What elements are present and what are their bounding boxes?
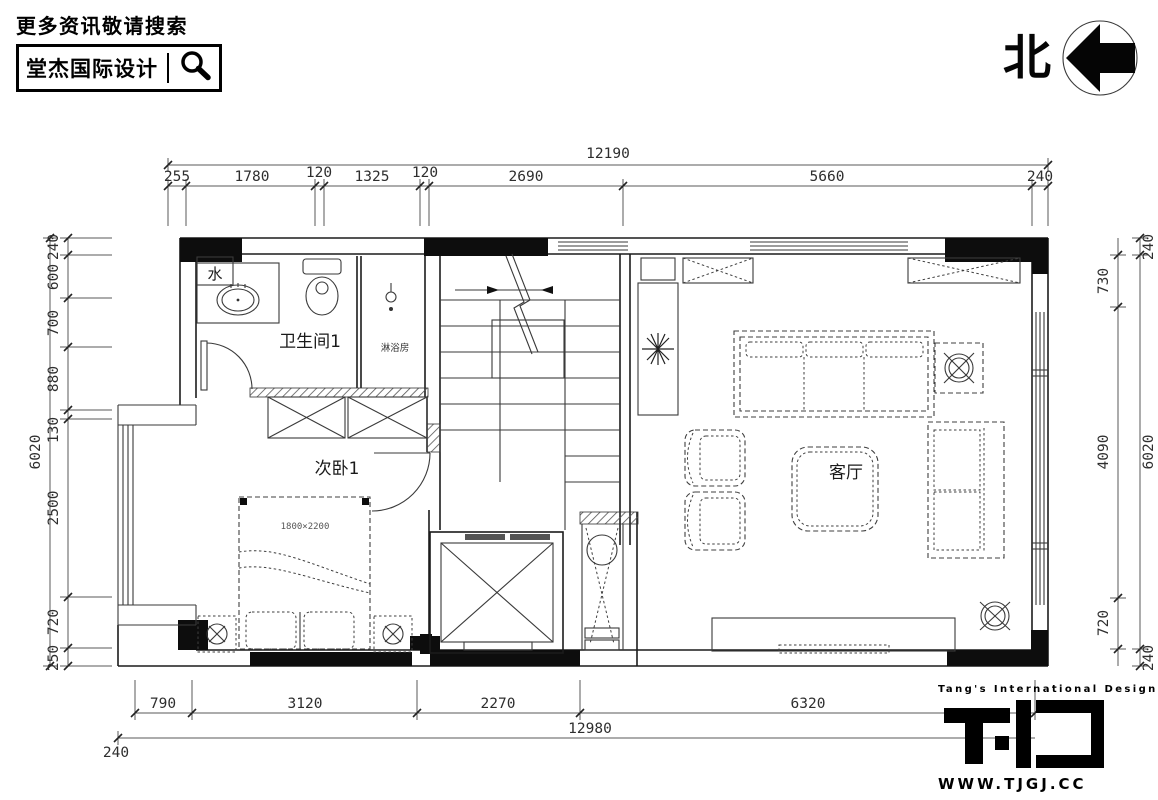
dim-left-seg: 720 <box>46 609 62 635</box>
hatched-wall <box>427 424 440 452</box>
dim-right-edge: 240 <box>1141 645 1157 671</box>
stair-direction-arrow <box>487 286 499 294</box>
bedroom <box>198 453 430 652</box>
living-room <box>683 258 1020 653</box>
dim-top-seg: 240 <box>1027 169 1053 185</box>
tid-logo-i <box>1016 700 1031 768</box>
north-compass: 北 <box>1003 21 1137 95</box>
plant-icon <box>642 333 674 365</box>
dim-left-seg: 240 <box>46 234 62 260</box>
floor-drain <box>389 307 393 311</box>
wardrobe <box>268 397 427 438</box>
footer-website: WWW.TJGJ.CC <box>938 775 1150 793</box>
search-icon <box>178 49 212 87</box>
floorplan-canvas: 北 12190 255 1780 120 1325 120 2690 5660 … <box>0 0 1158 800</box>
armchair <box>685 430 745 486</box>
label-shower: 淋浴房 <box>381 342 410 354</box>
bathroom-door-leaf <box>201 341 207 390</box>
dim-bottom-seg: 6320 <box>791 696 826 712</box>
north-arrow-icon <box>1066 24 1135 92</box>
dim-top-seg: 1325 <box>355 169 390 185</box>
dim-top-seg: 255 <box>164 169 190 185</box>
dim-right-seg: 720 <box>1096 610 1112 636</box>
dim-left-seg: 880 <box>46 366 62 392</box>
north-label: 北 <box>1003 30 1051 86</box>
toilet-tank <box>303 259 341 274</box>
dim-top-seg: 1780 <box>235 169 270 185</box>
label-bathroom: 卫生间1 <box>279 332 341 352</box>
hatched-wall <box>580 512 638 524</box>
tv-cabinet <box>712 618 955 651</box>
dim-left-seg: 600 <box>46 264 62 290</box>
dim-bottom-seg: 2270 <box>481 696 516 712</box>
dim-top-seg: 120 <box>306 165 332 181</box>
dim-left: 6020 240 600 700 880 130 2500 720 250 <box>28 234 112 671</box>
dim-top-seg: 120 <box>412 165 438 181</box>
dim-top-overall: 12190 <box>586 146 630 162</box>
pillow <box>304 612 354 649</box>
label-bed-size: 1800×2200 <box>281 522 330 532</box>
floorplan-page: 北 12190 255 1780 120 1325 120 2690 5660 … <box>0 0 1158 800</box>
dim-left-seg: 250 <box>46 645 62 671</box>
footer-brand: Tang's International Design WWW.TJGJ.CC <box>938 684 1150 793</box>
stair-landing <box>492 320 564 378</box>
tid-logo-t-stem <box>965 708 983 764</box>
laundry-closet <box>582 524 623 650</box>
pillow <box>246 612 296 649</box>
label-water: 水 <box>207 265 222 283</box>
label-bedroom: 次卧1 <box>315 459 360 479</box>
dim-right: 730 4090 720 240 6020 240 <box>1096 234 1157 671</box>
sofa-3seat <box>734 331 934 417</box>
dim-top: 12190 255 1780 120 1325 120 2690 5660 24… <box>164 146 1053 226</box>
elevator-door-rail <box>510 534 550 540</box>
plant-cabinet <box>638 258 678 415</box>
dim-right-seg: 4090 <box>1096 435 1112 470</box>
dim-bottom-seg: 3120 <box>288 696 323 712</box>
search-prompt-text: 更多资讯敬请搜索 <box>16 10 222 39</box>
bathroom-door-swing <box>207 343 252 389</box>
dim-left-seg: 700 <box>46 310 62 336</box>
tid-logo-d <box>1036 700 1104 768</box>
dim-bottom-edge: 240 <box>103 745 129 761</box>
tv <box>779 645 889 653</box>
washer-icon <box>587 535 617 565</box>
brand-box: 堂杰国际设计 <box>16 44 222 92</box>
bedroom-door-swing <box>372 453 430 511</box>
dim-top-seg: 5660 <box>810 169 845 185</box>
toilet-bowl <box>306 277 338 315</box>
dim-bottom-overall: 12980 <box>568 721 612 737</box>
dim-bottom: 790 3120 2270 6320 12980 240 <box>103 680 1039 761</box>
coffee-table <box>792 447 878 531</box>
dim-left-overall: 6020 <box>28 435 44 470</box>
dim-right-overall: 6020 <box>1141 435 1157 470</box>
tid-logo-dot <box>995 736 1009 750</box>
footer-tagline: Tang's International Design <box>938 684 1150 695</box>
bathroom <box>197 257 396 390</box>
label-living-room: 客厅 <box>829 463 863 483</box>
brand-divider <box>167 53 169 83</box>
elevator <box>430 532 563 653</box>
dim-left-seg: 130 <box>46 417 62 443</box>
shower-head <box>386 292 396 302</box>
dim-top-seg: 2690 <box>509 169 544 185</box>
elevator-door-rail <box>465 534 505 540</box>
dim-right-edge: 240 <box>1141 234 1157 260</box>
staircase <box>440 254 620 530</box>
room-labels: 水 卫生间1 淋浴房 次卧1 客厅 1800×2200 <box>207 265 863 532</box>
tid-logo <box>938 698 1150 770</box>
stair-direction-arrow <box>541 286 553 294</box>
walls <box>118 238 1048 666</box>
hatched-wall <box>250 388 428 397</box>
brand-block: 更多资讯敬请搜索 堂杰国际设计 <box>16 10 222 92</box>
dim-right-seg: 730 <box>1096 268 1112 294</box>
armchair <box>685 492 745 550</box>
dim-left-seg: 2500 <box>46 491 62 526</box>
dim-bottom-seg: 790 <box>150 696 176 712</box>
brand-name: 堂杰国际设计 <box>26 53 158 83</box>
